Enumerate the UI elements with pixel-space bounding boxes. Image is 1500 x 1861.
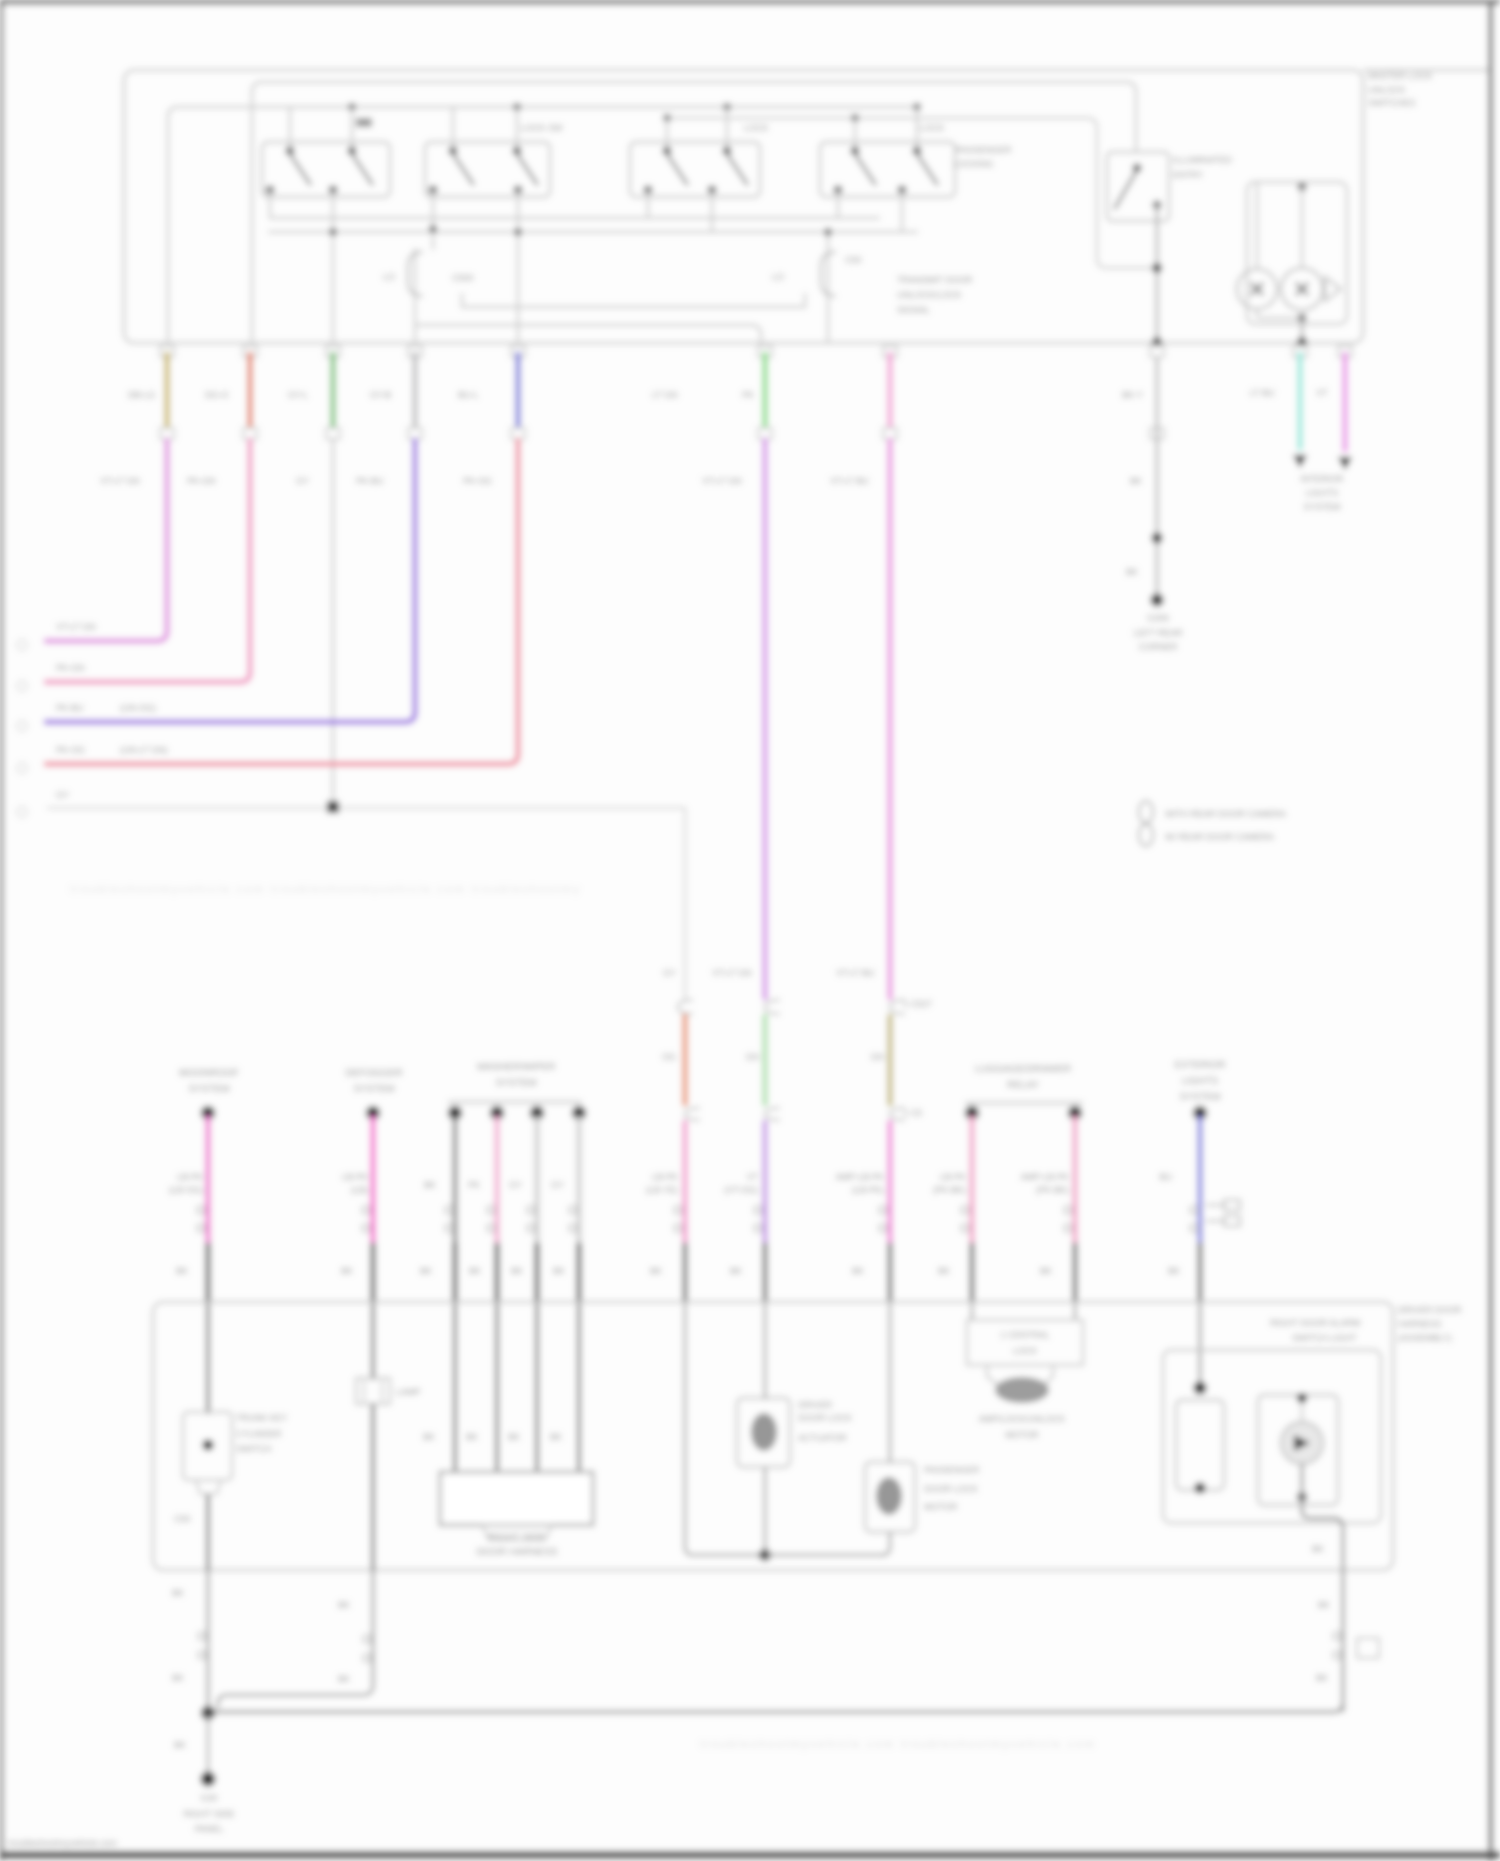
svg-text:GY: GY bbox=[509, 1180, 522, 1190]
svg-text:BK: BK bbox=[730, 1266, 742, 1276]
svg-text:SWITCH LIGHT: SWITCH LIGHT bbox=[1292, 1333, 1357, 1343]
svg-text:SYSTEM: SYSTEM bbox=[1303, 502, 1340, 512]
svg-text:PK-GN: PK-GN bbox=[187, 476, 216, 486]
svg-text:DB-LG: DB-LG bbox=[128, 390, 156, 400]
svg-text:ILLUMINATED: ILLUMINATED bbox=[1173, 155, 1232, 165]
svg-text:SWITCH: SWITCH bbox=[236, 1444, 272, 1454]
svg-text:BK: BK bbox=[172, 1673, 184, 1683]
svg-text:(PK-BK): (PK-BK) bbox=[1036, 1185, 1069, 1195]
svg-text:LB-PK: LB-PK bbox=[652, 1172, 678, 1182]
svg-text:BK: BK bbox=[511, 1266, 523, 1276]
svg-text:INTERIOR: INTERIOR bbox=[1300, 474, 1344, 484]
svg-text:LAMP: LAMP bbox=[396, 1387, 421, 1397]
svg-text:SYSTEM: SYSTEM bbox=[1179, 1092, 1220, 1103]
svg-text:PK-OG: PK-OG bbox=[463, 476, 492, 486]
svg-text:BK: BK bbox=[174, 1740, 186, 1750]
svg-text:BK-Y: BK-Y bbox=[1122, 390, 1143, 400]
svg-text:PK-BU: PK-BU bbox=[56, 703, 84, 713]
svg-text:PK: PK bbox=[468, 1180, 480, 1190]
svg-text:BK: BK bbox=[423, 1432, 435, 1442]
svg-text:LO: LO bbox=[383, 272, 395, 282]
svg-text:RELAY: RELAY bbox=[1007, 1080, 1039, 1091]
svg-text:BK: BK bbox=[550, 1432, 562, 1442]
svg-text:(VT-OG): (VT-OG) bbox=[724, 1185, 758, 1195]
svg-text:PK-OG: PK-OG bbox=[56, 745, 85, 755]
svg-text:LIGHTS: LIGHTS bbox=[1306, 488, 1339, 498]
svg-text:troubleshootmyvehicle.com t: troubleshootmyvehicle.com troubleshootmy… bbox=[700, 1737, 1096, 1751]
svg-text:SYSTEM: SYSTEM bbox=[495, 1078, 536, 1089]
svg-text:RIGHT SIDE: RIGHT SIDE bbox=[183, 1809, 234, 1819]
svg-text:BK: BK bbox=[420, 1266, 432, 1276]
svg-text:GN: GN bbox=[746, 1052, 760, 1062]
svg-text:SYSTEM: SYSTEM bbox=[188, 1084, 229, 1095]
svg-text:LOCK: LOCK bbox=[744, 123, 769, 133]
svg-text:BK: BK bbox=[508, 1432, 520, 1442]
svg-text:DG-O: DG-O bbox=[205, 390, 229, 400]
svg-text:DRIVER: DRIVER bbox=[798, 1400, 833, 1410]
svg-text:LOCKING: LOCKING bbox=[953, 159, 994, 169]
svg-text:MOONROOF: MOONROOF bbox=[179, 1068, 239, 1079]
svg-text:BK: BK bbox=[172, 1588, 184, 1598]
svg-text:RIGHT DOOR ALARM: RIGHT DOOR ALARM bbox=[1270, 1318, 1360, 1328]
svg-text:PASSENGER: PASSENGER bbox=[956, 145, 1012, 155]
svg-text:BK: BK bbox=[466, 1432, 478, 1442]
svg-text:GY: GY bbox=[296, 476, 309, 486]
svg-text:GN: GN bbox=[871, 1052, 885, 1062]
svg-text:VT-LT BU: VT-LT BU bbox=[836, 968, 875, 978]
svg-text:1 C5: 1 C5 bbox=[903, 1108, 922, 1118]
svg-text:G30: G30 bbox=[200, 1793, 217, 1803]
svg-text:(LB-OG): (LB-OG) bbox=[169, 1185, 203, 1195]
svg-text:1 C527: 1 C527 bbox=[903, 999, 932, 1009]
svg-text:LO: LO bbox=[772, 272, 784, 282]
svg-text:DRIVER DOOR: DRIVER DOOR bbox=[1398, 1305, 1462, 1315]
svg-text:BK: BK bbox=[424, 1180, 436, 1190]
svg-text:OG: OG bbox=[662, 1052, 676, 1062]
svg-text:LIGHTS: LIGHTS bbox=[1182, 1076, 1218, 1087]
svg-text:PASSENGER: PASSENGER bbox=[924, 1465, 980, 1475]
svg-text:AMP/LOCK/UNLOCK: AMP/LOCK/UNLOCK bbox=[979, 1414, 1066, 1424]
svg-text:WITH REAR DOOR CAMERA: WITH REAR DOOR CAMERA bbox=[1165, 809, 1286, 819]
svg-text:BK: BK bbox=[1318, 1600, 1330, 1610]
svg-text:(UN-OG): (UN-OG) bbox=[120, 703, 156, 713]
svg-text:(PK-BK): (PK-BK) bbox=[933, 1185, 966, 1195]
svg-text:BK: BK bbox=[1168, 1266, 1180, 1276]
svg-text:(LB): (LB) bbox=[351, 1185, 368, 1195]
svg-text:AMP-LB-PK: AMP-LB-PK bbox=[1020, 1172, 1069, 1182]
svg-text:MASTER LOCK: MASTER LOCK bbox=[1368, 71, 1433, 81]
svg-text:troubleshootmyvehicle.com: troubleshootmyvehicle.com bbox=[8, 1838, 117, 1848]
svg-text:BK: BK bbox=[650, 1266, 662, 1276]
svg-text:BK: BK bbox=[338, 1600, 350, 1610]
svg-text:VT-LT GN: VT-LT GN bbox=[56, 622, 96, 632]
svg-text:BK: BK bbox=[341, 1266, 353, 1276]
svg-text:(UN-LT GN): (UN-LT GN) bbox=[120, 745, 168, 755]
svg-text:DEFOGGER: DEFOGGER bbox=[345, 1068, 402, 1079]
svg-text:BK: BK bbox=[1040, 1266, 1052, 1276]
svg-text:BK: BK bbox=[1312, 1544, 1324, 1554]
svg-text:BK: BK bbox=[338, 1674, 350, 1684]
svg-text:MOTOR: MOTOR bbox=[1005, 1430, 1039, 1440]
svg-text:BK: BK bbox=[553, 1266, 565, 1276]
svg-text:BK: BK bbox=[1316, 1673, 1328, 1683]
svg-text:SWITCHES: SWITCHES bbox=[1368, 98, 1416, 108]
svg-text:VT: VT bbox=[746, 1172, 758, 1182]
svg-text:UNLOCK: UNLOCK bbox=[1368, 85, 1406, 95]
svg-text:GY: GY bbox=[56, 790, 69, 800]
svg-text:LUGGAGE/DRAWER: LUGGAGE/DRAWER bbox=[975, 1064, 1071, 1075]
svg-text:PK-GN: PK-GN bbox=[56, 663, 85, 673]
svg-text:(LB-YE): (LB-YE) bbox=[646, 1185, 678, 1195]
svg-text:HARNESS: HARNESS bbox=[1398, 1319, 1442, 1329]
svg-text:(ASSEMBLY): (ASSEMBLY) bbox=[1398, 1333, 1452, 1343]
svg-text:LOCK: LOCK bbox=[1013, 1346, 1038, 1356]
svg-text:G306: G306 bbox=[1147, 613, 1169, 623]
svg-text:AMP-LB-PK: AMP-LB-PK bbox=[835, 1172, 884, 1182]
svg-text:BU: BU bbox=[1159, 1172, 1172, 1182]
svg-text:EXTERIOR: EXTERIOR bbox=[1174, 1060, 1225, 1071]
svg-text:WASHER/WIPER: WASHER/WIPER bbox=[476, 1062, 555, 1073]
svg-text:1 CENTRAL: 1 CENTRAL bbox=[1000, 1330, 1050, 1340]
svg-text:LEFT REAR: LEFT REAR bbox=[1133, 628, 1183, 638]
svg-text:PANEL: PANEL bbox=[195, 1824, 224, 1834]
svg-text:CORNER: CORNER bbox=[1138, 642, 1178, 652]
svg-text:C50: C50 bbox=[174, 1514, 191, 1524]
svg-text:RIGHT SIDE: RIGHT SIDE bbox=[488, 1532, 545, 1543]
svg-text:TRUNK KEY: TRUNK KEY bbox=[236, 1413, 288, 1423]
svg-text:GY-L: GY-L bbox=[288, 390, 308, 400]
svg-text:BK: BK bbox=[176, 1266, 188, 1276]
svg-text:LT BU: LT BU bbox=[1250, 388, 1275, 398]
svg-text:troubleshootmyvehicle.com t: troubleshootmyvehicle.com troubleshootmy… bbox=[70, 882, 582, 896]
svg-text:VT: VT bbox=[1316, 388, 1328, 398]
svg-text:GY: GY bbox=[551, 1180, 564, 1190]
svg-text:DOOR HARNESS: DOOR HARNESS bbox=[476, 1547, 557, 1558]
svg-text:VT-LT GN: VT-LT GN bbox=[702, 476, 742, 486]
svg-text:LB-PK: LB-PK bbox=[177, 1172, 203, 1182]
svg-text:GY: GY bbox=[663, 968, 676, 978]
svg-text:BK: BK bbox=[1126, 567, 1138, 577]
svg-text:LOCK: LOCK bbox=[920, 123, 945, 133]
svg-text:LT GN: LT GN bbox=[652, 390, 678, 400]
svg-text:UNLOCK/LOCK: UNLOCK/LOCK bbox=[897, 290, 962, 300]
svg-text:LOCK SW: LOCK SW bbox=[521, 123, 563, 133]
svg-text:DOOR LOCK: DOOR LOCK bbox=[924, 1484, 978, 1494]
svg-text:ACTUATOR: ACTUATOR bbox=[798, 1433, 847, 1443]
svg-text:LB-PK: LB-PK bbox=[940, 1172, 966, 1182]
svg-text:GY-B: GY-B bbox=[370, 390, 391, 400]
svg-text:(LB-PK): (LB-PK) bbox=[852, 1185, 884, 1195]
svg-text:TRANSMIT DOOR: TRANSMIT DOOR bbox=[897, 275, 973, 285]
svg-text:BK: BK bbox=[938, 1266, 950, 1276]
svg-text:VT-LT GN: VT-LT GN bbox=[100, 476, 140, 486]
svg-text:BK: BK bbox=[852, 1266, 864, 1276]
svg-text:PK-BU: PK-BU bbox=[356, 476, 384, 486]
svg-text:C50: C50 bbox=[845, 255, 862, 265]
svg-text:CYLINDER: CYLINDER bbox=[236, 1429, 282, 1439]
svg-text:VT-LT GN: VT-LT GN bbox=[712, 968, 752, 978]
svg-text:BK: BK bbox=[469, 1266, 481, 1276]
svg-text:C500: C500 bbox=[452, 273, 474, 283]
svg-text:BK: BK bbox=[1130, 476, 1142, 486]
svg-text:DOOR LOCK: DOOR LOCK bbox=[798, 1413, 852, 1423]
svg-text:PK: PK bbox=[742, 390, 754, 400]
svg-text:LB-PK: LB-PK bbox=[342, 1172, 368, 1182]
svg-text:VT-LT BU: VT-LT BU bbox=[830, 476, 869, 486]
svg-text:MOTOR: MOTOR bbox=[924, 1502, 958, 1512]
svg-text:ENTRY: ENTRY bbox=[1173, 170, 1203, 180]
svg-text:W/ REAR DOOR CAMERA: W/ REAR DOOR CAMERA bbox=[1165, 832, 1274, 842]
svg-text:BU-L: BU-L bbox=[458, 390, 479, 400]
svg-text:SYSTEM: SYSTEM bbox=[353, 1084, 394, 1095]
svg-text:SIGNAL: SIGNAL bbox=[897, 305, 930, 315]
